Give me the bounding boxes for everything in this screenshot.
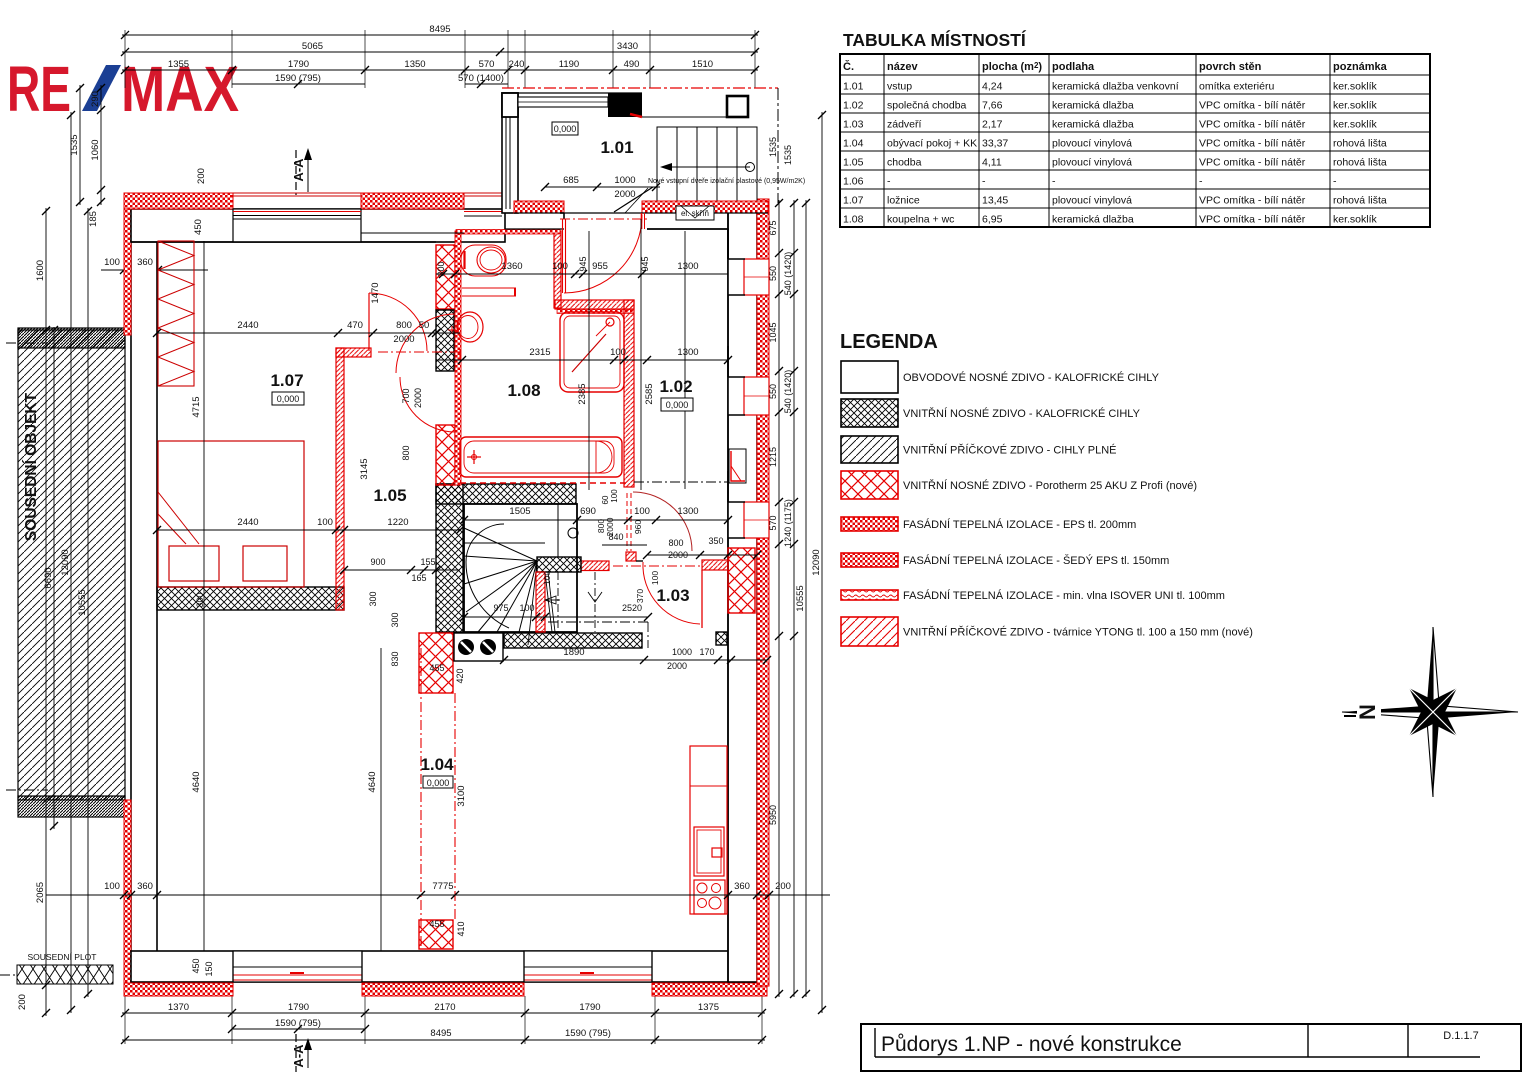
svg-text:410: 410 (456, 921, 466, 936)
svg-text:OBVODOVÉ NOSNÉ ZDIVO - KALOFRI: OBVODOVÉ NOSNÉ ZDIVO - KALOFRICKÉ CIHLY (903, 371, 1160, 384)
svg-text:1190: 1190 (559, 59, 579, 70)
svg-text:koupelna + wc: koupelna + wc (887, 214, 954, 226)
svg-text:800: 800 (396, 320, 412, 331)
svg-text:155: 155 (420, 557, 435, 567)
svg-text:170: 170 (699, 647, 714, 657)
svg-text:-: - (1333, 176, 1337, 188)
svg-text:490: 490 (624, 59, 640, 70)
svg-text:700: 700 (401, 388, 411, 403)
svg-text:945: 945 (578, 256, 588, 271)
svg-text:N: N (1355, 704, 1380, 720)
svg-text:VPC omítka - bílí nátěr: VPC omítka - bílí nátěr (1199, 138, 1306, 150)
svg-text:100: 100 (610, 347, 626, 358)
svg-text:FASÁDNÍ TEPELNÁ IZOLACE - ŠEDÝ: FASÁDNÍ TEPELNÁ IZOLACE - ŠEDÝ EPS tl. 1… (903, 554, 1169, 567)
svg-text:240: 240 (509, 59, 525, 70)
svg-text:185: 185 (88, 211, 99, 227)
svg-text:5065: 5065 (302, 41, 323, 52)
svg-text:1360: 1360 (501, 261, 522, 272)
svg-text:200: 200 (775, 881, 791, 892)
svg-text:165: 165 (411, 573, 426, 583)
svg-text:10555: 10555 (795, 585, 806, 611)
svg-text:290: 290 (90, 91, 101, 107)
svg-text:100: 100 (552, 261, 568, 272)
svg-text:VPC omítka - bílí nátěr: VPC omítka - bílí nátěr (1199, 119, 1306, 131)
svg-text:povrch stěn: povrch stěn (1199, 61, 1262, 73)
svg-text:2585: 2585 (644, 383, 655, 404)
svg-text:1.05: 1.05 (843, 157, 864, 169)
svg-text:D.1.1.7: D.1.1.7 (1443, 1030, 1478, 1042)
svg-text:omítka exteriéru: omítka exteriéru (1199, 81, 1274, 93)
svg-text:1.08: 1.08 (843, 214, 864, 226)
svg-text:0,000: 0,000 (427, 778, 450, 788)
svg-text:300: 300 (436, 261, 446, 276)
svg-text:150: 150 (204, 961, 214, 976)
svg-text:300: 300 (390, 612, 400, 627)
svg-text:SOUSEDNÍ OBJEKT: SOUSEDNÍ OBJEKT (23, 392, 40, 541)
svg-text:1590 (795): 1590 (795) (275, 73, 321, 84)
svg-text:4,24: 4,24 (982, 81, 1003, 93)
svg-text:50: 50 (419, 320, 430, 331)
svg-text:4640: 4640 (191, 771, 202, 792)
svg-text:rohová lišta: rohová lišta (1333, 195, 1387, 207)
svg-text:1.03: 1.03 (656, 586, 689, 605)
svg-text:540 (1420): 540 (1420) (783, 370, 793, 414)
svg-text:A-A: A-A (291, 158, 306, 182)
svg-text:keramická dlažba venkovní: keramická dlažba venkovní (1052, 81, 1179, 93)
svg-text:1240 (1175): 1240 (1175) (783, 499, 793, 547)
svg-text:1790: 1790 (579, 1002, 600, 1013)
svg-text:3430: 3430 (617, 41, 638, 52)
svg-text:13,45: 13,45 (982, 195, 1008, 207)
svg-text:VPC omítka - bílí nátěr: VPC omítka - bílí nátěr (1199, 157, 1306, 169)
svg-text:VNITŘNÍ PŘÍČKOVÉ ZDIVO - CIHLY: VNITŘNÍ PŘÍČKOVÉ ZDIVO - CIHLY PLNÉ (903, 444, 1117, 457)
svg-text:0,000: 0,000 (277, 394, 300, 404)
svg-text:1535: 1535 (783, 145, 793, 165)
svg-text:1510: 1510 (692, 59, 713, 70)
svg-text:SOUSEDNÍ PLOT: SOUSEDNÍ PLOT (28, 952, 97, 962)
svg-text:ložnice: ložnice (887, 195, 920, 207)
svg-text:800: 800 (401, 445, 411, 460)
svg-text:plocha (m2): plocha (m2) (982, 61, 1042, 73)
svg-text:1300: 1300 (677, 506, 698, 517)
svg-text:33,37: 33,37 (982, 138, 1008, 150)
svg-text:800: 800 (668, 538, 683, 548)
svg-text:1590 (795): 1590 (795) (565, 1028, 611, 1039)
svg-text:1000: 1000 (672, 647, 692, 657)
svg-text:ker.soklík: ker.soklík (1333, 81, 1378, 93)
svg-text:-: - (1199, 176, 1203, 188)
svg-text:1300: 1300 (677, 347, 698, 358)
svg-text:chodba: chodba (887, 157, 922, 169)
svg-text:1370: 1370 (168, 1002, 189, 1013)
svg-text:2000: 2000 (668, 550, 688, 560)
svg-text:470: 470 (347, 320, 363, 331)
svg-text:540 (1420): 540 (1420) (783, 252, 793, 296)
svg-text:2170: 2170 (434, 1002, 455, 1013)
svg-text:2000: 2000 (413, 388, 423, 408)
svg-text:2,17: 2,17 (982, 119, 1003, 131)
svg-text:360: 360 (734, 881, 750, 892)
svg-text:VPC omítka - bílí nátěr: VPC omítka - bílí nátěr (1199, 195, 1306, 207)
svg-text:1.08: 1.08 (507, 381, 540, 400)
svg-text:rohová lišta: rohová lišta (1333, 157, 1387, 169)
svg-text:1350: 1350 (404, 59, 425, 70)
svg-text:1.02: 1.02 (843, 100, 864, 112)
svg-text:společná chodba: společná chodba (887, 100, 967, 112)
svg-text:300: 300 (368, 591, 378, 606)
svg-text:455: 455 (429, 663, 444, 673)
svg-text:1220: 1220 (387, 517, 408, 528)
svg-text:200: 200 (17, 994, 28, 1010)
svg-text:1375: 1375 (698, 1002, 719, 1013)
svg-text:4640: 4640 (367, 771, 378, 792)
svg-text:945: 945 (640, 256, 650, 271)
svg-text:1505: 1505 (509, 506, 530, 517)
svg-text:300: 300 (195, 592, 205, 607)
svg-text:VNITŘNÍ NOSNÉ ZDIVO - Porother: VNITŘNÍ NOSNÉ ZDIVO - Porotherm 25 AKU Z… (903, 479, 1197, 492)
svg-text:FASÁDNÍ TEPELNÁ IZOLACE - EPS: FASÁDNÍ TEPELNÁ IZOLACE - EPS tl. 200mm (903, 518, 1136, 531)
svg-text:360: 360 (137, 881, 153, 892)
svg-text:455: 455 (429, 919, 444, 929)
svg-text:100: 100 (650, 571, 660, 585)
svg-text:100: 100 (317, 517, 333, 528)
svg-text:1.04: 1.04 (420, 755, 454, 774)
svg-text:el. skříň: el. skříň (681, 209, 709, 218)
svg-text:1600: 1600 (35, 260, 46, 281)
svg-text:FASÁDNÍ TEPELNÁ IZOLACE - min.: FASÁDNÍ TEPELNÁ IZOLACE - min. vlna ISOV… (903, 589, 1225, 602)
svg-text:7,66: 7,66 (982, 100, 1003, 112)
svg-text:1.04: 1.04 (843, 138, 864, 150)
svg-text:200: 200 (196, 168, 207, 184)
svg-text:1.02: 1.02 (659, 377, 692, 396)
svg-text:vstup: vstup (887, 81, 912, 93)
svg-text:1.06: 1.06 (843, 176, 864, 188)
svg-text:1000: 1000 (614, 175, 635, 186)
svg-text:VPC omítka - bílí nátěr: VPC omítka - bílí nátěr (1199, 100, 1306, 112)
svg-text:8495: 8495 (429, 24, 450, 35)
svg-text:ker.soklík: ker.soklík (1333, 100, 1378, 112)
svg-text:plovoucí vinylová: plovoucí vinylová (1052, 138, 1132, 150)
svg-text:2440: 2440 (237, 517, 258, 528)
svg-text:570: 570 (479, 59, 495, 70)
svg-text:VNITŘNÍ NOSNÉ ZDIVO - KALOFRIC: VNITŘNÍ NOSNÉ ZDIVO - KALOFRICKÉ CIHLY (903, 407, 1141, 420)
svg-text:1590 (795): 1590 (795) (275, 1018, 321, 1029)
svg-text:2385: 2385 (577, 383, 588, 404)
svg-text:4,11: 4,11 (982, 157, 1002, 169)
svg-text:A-A: A-A (291, 1044, 306, 1068)
svg-text:350: 350 (708, 536, 723, 546)
svg-text:1.07: 1.07 (843, 195, 864, 207)
svg-text:1300: 1300 (677, 261, 698, 272)
svg-text:RE: RE (7, 53, 71, 125)
svg-text:Č.: Č. (843, 60, 854, 73)
svg-text:2000: 2000 (614, 189, 635, 200)
svg-text:8495: 8495 (430, 1028, 451, 1039)
svg-text:4715: 4715 (191, 396, 202, 417)
svg-text:VPC omítka - bílí nátěr: VPC omítka - bílí nátěr (1199, 214, 1306, 226)
svg-text:2000: 2000 (667, 661, 687, 671)
svg-text:poznámka: poznámka (1333, 61, 1388, 73)
svg-text:830: 830 (390, 651, 400, 666)
svg-text:0,000: 0,000 (554, 124, 577, 134)
svg-text:690: 690 (580, 506, 596, 517)
svg-text:1535: 1535 (768, 137, 778, 157)
svg-text:100: 100 (104, 257, 120, 268)
svg-text:1355: 1355 (168, 59, 189, 70)
svg-text:Půdorys 1.NP - nové konstrukce: Půdorys 1.NP - nové konstrukce (881, 1033, 1182, 1056)
svg-text:ker.soklík: ker.soklík (1333, 214, 1378, 226)
svg-text:1470: 1470 (370, 282, 381, 303)
svg-text:ker.soklík: ker.soklík (1333, 119, 1378, 131)
svg-text:TABULKA MÍSTNOSTÍ: TABULKA MÍSTNOSTÍ (843, 29, 1027, 50)
svg-text:2315: 2315 (529, 347, 550, 358)
svg-text:podlaha: podlaha (1052, 61, 1095, 73)
svg-text:420: 420 (455, 668, 465, 683)
svg-text:keramická dlažba: keramická dlažba (1052, 214, 1134, 226)
svg-text:960: 960 (633, 520, 643, 534)
svg-text:2065: 2065 (35, 882, 46, 903)
svg-text:7775: 7775 (432, 881, 453, 892)
svg-text:1890: 1890 (563, 647, 584, 658)
svg-text:1.01: 1.01 (843, 81, 864, 93)
svg-text:1.01: 1.01 (600, 138, 633, 157)
svg-text:975: 975 (493, 603, 508, 613)
svg-text:1790: 1790 (288, 59, 309, 70)
svg-text:-: - (982, 176, 986, 188)
svg-text:3100: 3100 (456, 785, 467, 806)
svg-text:-: - (1052, 176, 1056, 188)
svg-text:685: 685 (563, 175, 579, 186)
svg-text:2000: 2000 (605, 517, 615, 536)
svg-text:0,000: 0,000 (666, 400, 689, 410)
svg-text:900: 900 (370, 557, 385, 567)
svg-text:1.03: 1.03 (843, 119, 864, 131)
svg-text:1.05: 1.05 (373, 486, 406, 505)
svg-text:100: 100 (610, 489, 619, 503)
svg-text:100: 100 (104, 881, 120, 892)
svg-text:keramická dlažba: keramická dlažba (1052, 100, 1134, 112)
svg-text:955: 955 (592, 261, 608, 272)
svg-text:1060: 1060 (90, 139, 101, 160)
svg-text:1.07: 1.07 (270, 371, 303, 390)
svg-text:plovoucí vinylová: plovoucí vinylová (1052, 157, 1132, 169)
svg-text:3145: 3145 (359, 458, 370, 479)
svg-text:100: 100 (519, 603, 534, 613)
svg-text:LEGENDA: LEGENDA (840, 331, 938, 353)
svg-text:název: název (887, 61, 918, 73)
svg-text:370: 370 (635, 589, 645, 603)
svg-text:450: 450 (191, 958, 201, 973)
svg-text:100: 100 (542, 571, 552, 585)
svg-text:rohová lišta: rohová lišta (1333, 138, 1387, 150)
svg-text:obývací pokoj + KK: obývací pokoj + KK (887, 138, 977, 150)
svg-text:6,95: 6,95 (982, 214, 1003, 226)
svg-text:-: - (887, 176, 891, 188)
svg-text:450: 450 (193, 219, 204, 235)
svg-text:2440: 2440 (237, 320, 258, 331)
svg-text:VNITŘNÍ PŘÍČKOVÉ ZDIVO - tvárn: VNITŘNÍ PŘÍČKOVÉ ZDIVO - tvárnice YTONG … (903, 626, 1253, 639)
svg-text:2520: 2520 (622, 603, 642, 613)
svg-text:1790: 1790 (288, 1002, 309, 1013)
svg-text:zádveří: zádveří (887, 119, 922, 131)
svg-text:plovoucí vinylová: plovoucí vinylová (1052, 195, 1132, 207)
svg-text:60: 60 (601, 495, 610, 504)
svg-text:360: 360 (137, 257, 153, 268)
svg-text:Nové vstupní dveře izolační pl: Nové vstupní dveře izolační plastové (0,… (648, 178, 805, 185)
svg-text:12090: 12090 (811, 549, 822, 575)
svg-text:keramická dlažba: keramická dlažba (1052, 119, 1134, 131)
svg-text:100: 100 (634, 506, 650, 517)
svg-text:2000: 2000 (393, 334, 414, 345)
